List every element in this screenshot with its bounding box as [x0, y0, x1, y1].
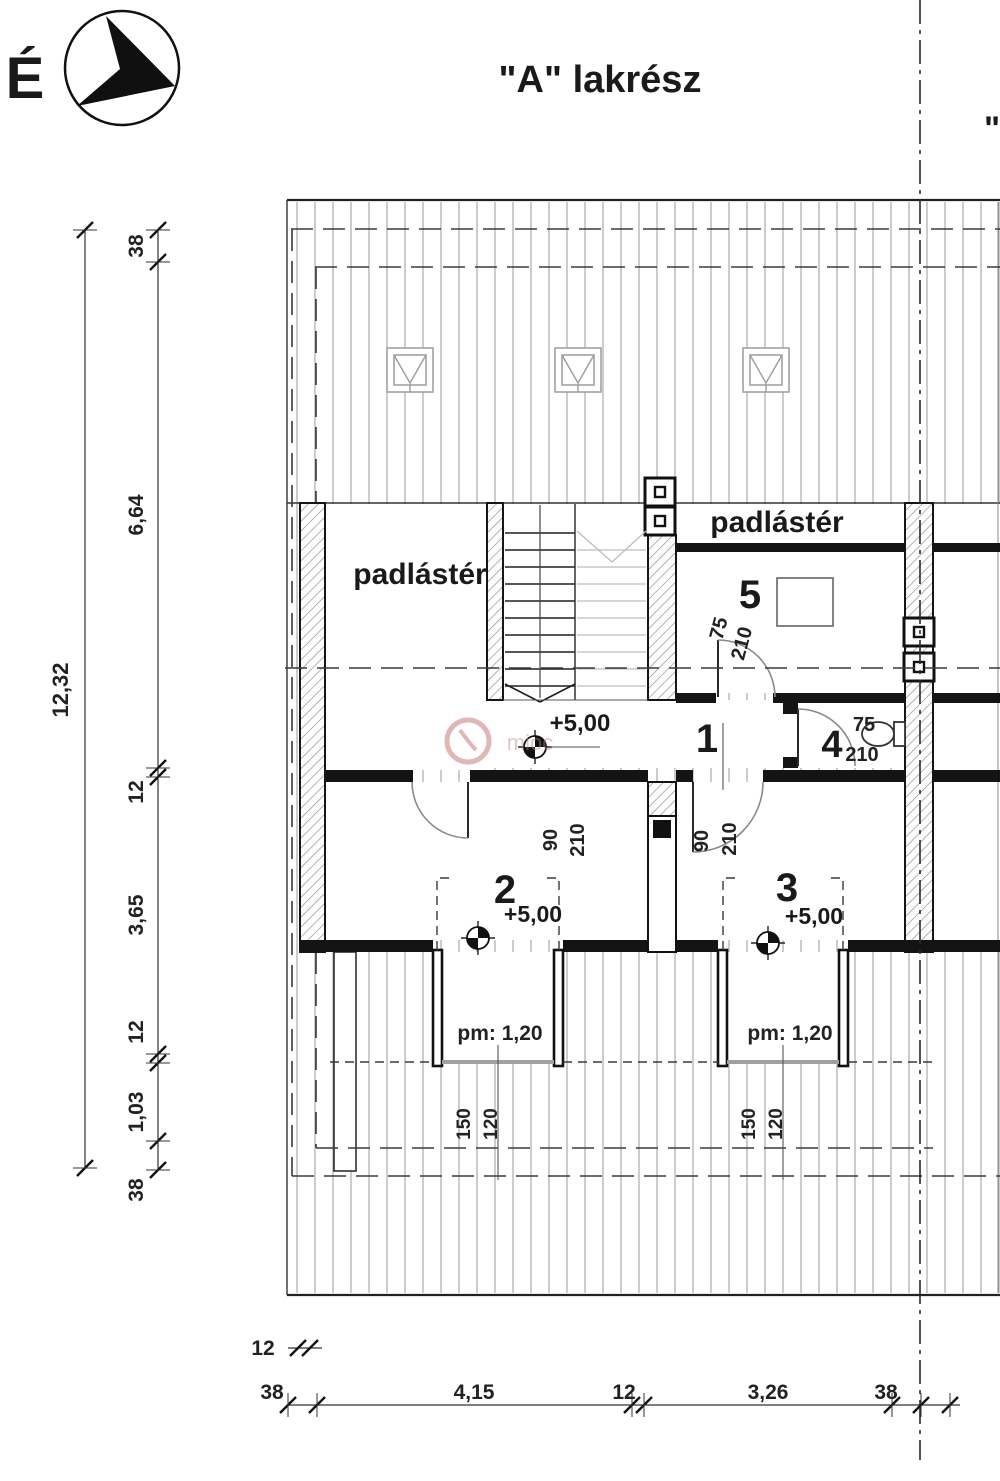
left-outer-wall: [300, 503, 325, 952]
room3-sill-label: pm: 1,20: [747, 1022, 832, 1045]
dim-label: 3,26: [748, 1381, 789, 1404]
door-dim: 90: [691, 830, 713, 852]
door-dim: 90: [540, 829, 562, 851]
dim-label: 12: [612, 1381, 635, 1404]
roof-window-icon: [387, 348, 433, 392]
hall-bottom-wall: [325, 770, 413, 782]
window-dim: 150: [454, 1108, 475, 1140]
attic-left-floor: [325, 504, 487, 770]
roof-window-icon: [555, 348, 601, 392]
attic-left-label: padlástér: [353, 558, 487, 591]
window-dim: 120: [481, 1108, 502, 1140]
attic-right-label: padlástér: [710, 506, 844, 539]
dim-label: 38: [874, 1381, 898, 1404]
room5-front-wall: [677, 543, 905, 552]
window-jamb: [433, 950, 442, 1066]
dim-eave-offset: 12: [251, 1337, 274, 1360]
roof-window-icon: [743, 348, 789, 392]
dim-label: 1,03: [125, 1092, 148, 1133]
dim-label: 3,65: [125, 894, 148, 935]
window-jamb: [718, 950, 727, 1066]
window-jamb: [554, 950, 563, 1066]
dim-label: 12: [125, 780, 148, 803]
flue-solid-icon: [653, 820, 671, 838]
floor-plan-drawing: É "A" lakrész ": [0, 0, 1000, 1481]
dim-label: 38: [125, 1178, 148, 1202]
dim-left-total: 12,32: [48, 662, 73, 717]
room2-floor: [325, 782, 648, 940]
chimney-wall: [648, 535, 676, 700]
wc-door-stub: [783, 757, 798, 768]
room5-furniture: [777, 578, 833, 626]
dim-label: 12: [125, 1020, 148, 1043]
dim-label: 6,64: [125, 494, 148, 535]
window-dim: 150: [739, 1108, 760, 1140]
door-dim: 75: [853, 714, 875, 736]
chimney-lower: [648, 782, 676, 952]
room2-sill-label: pm: 1,20: [457, 1022, 542, 1045]
door-dim: 210: [845, 744, 878, 766]
room3-level: +5,00: [785, 903, 843, 929]
flue-icon: [645, 478, 675, 506]
flue-icon: [645, 507, 675, 535]
room1-level: +5,00: [550, 710, 611, 737]
window-jamb: [839, 950, 848, 1066]
bottom-outer-wall: [300, 940, 433, 952]
room4-number: 4: [821, 724, 842, 766]
room5-number: 5: [739, 573, 761, 617]
north-label: É: [6, 46, 45, 111]
right-party-wall: [905, 503, 933, 952]
door-dim: 210: [719, 822, 741, 855]
room2-level: +5,00: [504, 901, 562, 927]
section-b-hint: ": [984, 110, 1000, 148]
stair-left-wall: [487, 503, 503, 700]
section-b-cut-area: [933, 504, 1000, 940]
hall-top-wall: [676, 693, 716, 703]
flue-icon: [904, 653, 934, 681]
dim-label: 4,15: [454, 1381, 495, 1404]
flue-icon: [904, 618, 934, 646]
north-compass: [65, 11, 179, 125]
room1-number: 1: [696, 717, 718, 761]
wc-door-stub: [783, 703, 798, 714]
window-dim: 120: [766, 1108, 787, 1140]
plan-title: "A" lakrész: [499, 59, 702, 101]
watermark-text: mioc: [507, 730, 553, 755]
dim-label: 38: [125, 234, 148, 258]
door-dim: 210: [567, 823, 589, 856]
chimney-top: [645, 478, 675, 535]
dim-label: 38: [260, 1381, 284, 1404]
